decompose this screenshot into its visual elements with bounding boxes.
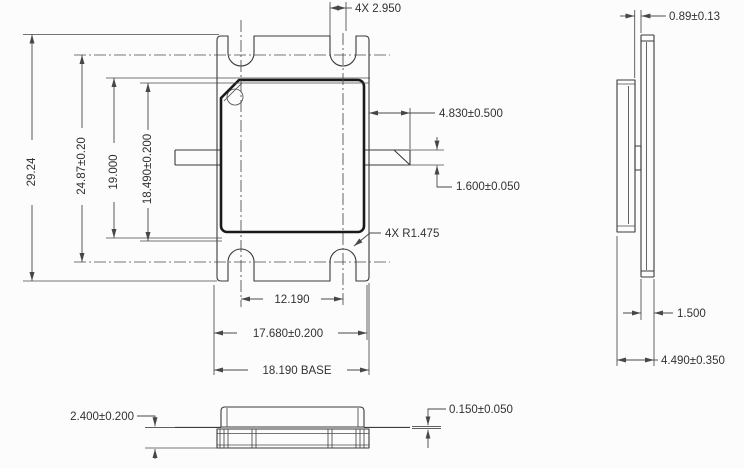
elevation-cap-lip-lines — [227, 408, 358, 427]
dim-label-lead-length: 4.830±0.500 — [439, 108, 503, 120]
dim-lead-width: 1.600±0.050 — [437, 137, 520, 193]
dim-label-lead-thickness: 0.150±0.050 — [449, 404, 513, 416]
front-elevation-view: 2.400±0.200 0.150±0.050 — [70, 404, 513, 459]
drawing-sheet: 29.24 24.87±0.20 19.000 18.490±0.200 4X … — [0, 0, 744, 468]
dim-label-base-width: 18.190 BASE — [262, 365, 331, 377]
dim-corner-radius: 4X R1.475 — [354, 228, 439, 246]
dim-lead-length: 4.830±0.500 — [369, 108, 503, 120]
side-cap — [641, 35, 654, 277]
dim-label-notch-width: 4X 2.950 — [355, 3, 401, 15]
side-flange-detail — [617, 84, 635, 226]
elevation-cap — [221, 407, 364, 427]
side-flange — [617, 80, 635, 232]
dim-label-seat-height: 18.490±0.200 — [142, 134, 154, 204]
dim-notch-width: 4X 2.950 — [330, 3, 401, 15]
lead-left — [175, 150, 221, 165]
elevation-flange-lines — [217, 429, 369, 448]
dim-label-notch-spacing: 12.190 — [274, 294, 309, 306]
dim-overall-depth: 4.490±0.350 — [617, 355, 725, 367]
engineering-drawing: 29.24 24.87±0.20 19.000 18.490±0.200 4X … — [0, 0, 744, 468]
dim-label-flange-thickness: 2.400±0.200 — [70, 411, 134, 423]
lead-right — [364, 150, 410, 165]
dim-body-width: 17.680±0.200 — [214, 328, 367, 340]
dim-label-notch-centers-height: 24.87±0.20 — [76, 137, 88, 194]
dim-seat-height: 18.490±0.200 — [142, 83, 154, 241]
dim-body-height: 19.000 — [108, 78, 120, 238]
dim-label-corner-radius: 4X R1.475 — [385, 228, 439, 240]
front-view: 29.24 24.87±0.20 19.000 18.490±0.200 4X … — [23, 2, 520, 377]
dim-label-flange-to-cap: 0.89±0.13 — [669, 11, 720, 23]
side-lead — [635, 146, 641, 170]
dim-label-body-height: 19.000 — [108, 154, 120, 189]
dim-overall-height: 29.24 — [26, 35, 38, 282]
dim-label-overall-depth: 4.490±0.350 — [661, 355, 725, 367]
dim-base-width: 18.190 BASE — [214, 365, 369, 377]
dim-notch-centers-height: 24.87±0.20 — [76, 55, 88, 262]
flange-outline — [217, 36, 369, 281]
dim-cap-thickness: 1.500 — [623, 308, 706, 320]
dim-label-body-width: 17.680±0.200 — [253, 328, 323, 340]
cap-outline — [221, 80, 364, 232]
side-view: 0.89±0.13 1.500 4.490±0.350 — [617, 10, 725, 367]
dim-label-overall-height: 29.24 — [26, 157, 38, 186]
dim-label-cap-thickness: 1.500 — [677, 308, 706, 320]
dim-label-lead-width: 1.600±0.050 — [456, 181, 520, 193]
dim-flange-thickness: 2.400±0.200 — [70, 411, 155, 459]
dim-notch-spacing: 12.190 — [241, 294, 343, 306]
